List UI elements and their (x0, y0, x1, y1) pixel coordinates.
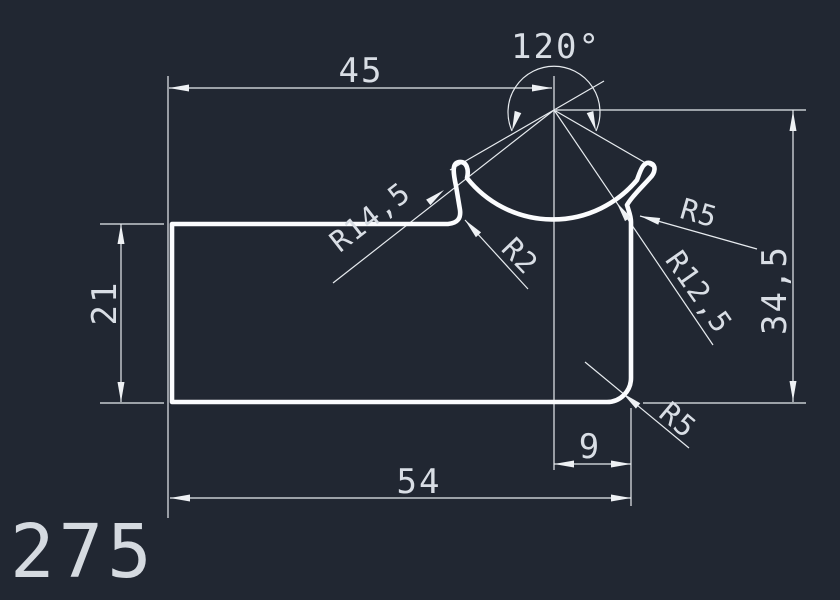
dim-right-height-label: 34,5 (755, 245, 795, 335)
radius-groove-outer-label: R14,5 (323, 175, 417, 259)
dimension-labels: 45 120° 21 34,5 9 54 R14,5 R2 R5 R12,5 R… (85, 27, 795, 502)
angle-leg-left (450, 110, 554, 170)
arrow-r2 (465, 220, 481, 237)
arrow-45-right (532, 85, 552, 92)
dim-bottom-width-label: 54 (397, 462, 442, 502)
part-number-label: 275 (10, 509, 156, 595)
arrow-45-left (169, 85, 189, 92)
arrow-9-right (611, 461, 631, 468)
arrow-arc-right (587, 111, 596, 131)
arrow-54-left (170, 495, 190, 502)
arrow-21-up (118, 224, 125, 244)
dim-right-offset-label: 9 (579, 427, 601, 467)
arrow-54-right (611, 495, 631, 502)
arrow-arc-left (512, 111, 521, 131)
radius-lip-inner-label: R2 (495, 231, 545, 281)
arrow-21-down (118, 382, 125, 402)
cad-viewport[interactable]: 45 120° 21 34,5 9 54 R14,5 R2 R5 R12,5 R… (0, 0, 840, 600)
arrow-9-left (554, 461, 574, 468)
arrow-r5-hook (640, 216, 660, 225)
cad-drawing-area: 45 120° 21 34,5 9 54 R14,5 R2 R5 R12,5 R… (0, 0, 840, 600)
angle-leg-right (554, 110, 656, 169)
arrow-34-5-up (790, 111, 797, 131)
arrow-34-5-down (790, 381, 797, 401)
arrow-r5-corner (623, 393, 641, 408)
dim-top-width-label: 45 (339, 51, 384, 91)
dim-angle-label: 120° (511, 27, 601, 67)
dim-left-height-label: 21 (85, 281, 125, 326)
